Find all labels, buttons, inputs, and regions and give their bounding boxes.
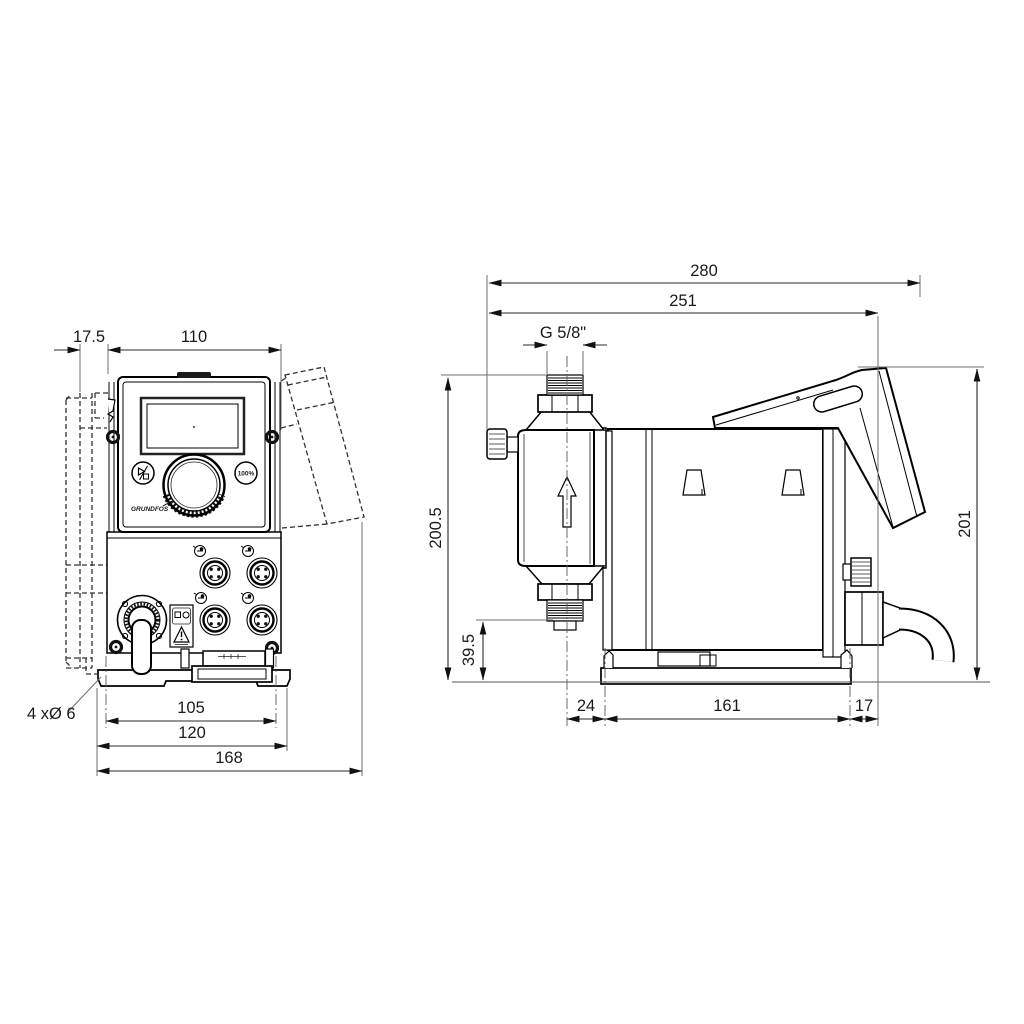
din-clamp [181,649,274,682]
dosing-pump-dimensional-drawing: 100% GRUNDFOS [0,0,1024,1024]
back-panel [823,429,845,657]
head-flange [594,428,606,568]
mounting-holes-label: 4 xØ 6 [27,705,76,723]
dim-168-label: 168 [215,749,243,767]
display-cursor-dot [193,426,195,428]
union-nut [538,395,592,412]
cable-gland [118,596,167,675]
union-nut [538,584,592,600]
dim-280-label: 280 [690,262,718,280]
control-cube-phantom [285,367,364,524]
hundred-percent-label: 100% [238,471,255,478]
rear-connections [843,558,943,661]
dim-161-label: 161 [713,697,741,715]
m12-connector[interactable] [200,558,230,588]
pump-housing-side [608,429,823,650]
dim-200-5-label: 200.5 [427,507,445,548]
svg-text:GRUNDFOS: GRUNDFOS [131,506,169,513]
display [141,398,244,454]
vent-valve[interactable] [487,429,518,459]
dim-120-label: 120 [178,724,206,742]
inlet-connection [538,584,592,630]
thread-size-label: G 5/8" [540,324,586,342]
top-clip [177,372,211,378]
m12-connector[interactable] [200,605,230,635]
cable-gland-side [845,592,883,645]
start-stop-button[interactable] [132,462,154,484]
dim-110-label: 110 [181,328,207,346]
m12-connector[interactable] [247,605,277,635]
hundred-percent-button[interactable]: 100% [235,462,257,484]
technical-drawing-page: 100% GRUNDFOS [0,0,1024,1024]
mounting-plate-side [601,650,852,684]
dosing-head [487,375,612,650]
outlet-connection [538,375,592,412]
power-cable-front [132,620,151,674]
warning-label [170,605,193,647]
side-view [452,356,990,726]
m12-connector[interactable] [247,558,277,588]
dim-24-label: 24 [577,697,595,715]
dim-39-5-label: 39.5 [460,634,478,666]
gland-nozzle [883,602,900,638]
dim-17-label: 17 [855,697,873,715]
dim-17-5-label: 17.5 [73,328,105,346]
dim-105-label: 105 [177,699,205,717]
inlet-stub [554,621,576,630]
click-wheel[interactable] [164,455,225,516]
front-view: 100% GRUNDFOS [66,367,364,728]
dim-251-label: 251 [669,292,697,310]
dim-201-label: 201 [956,510,974,538]
